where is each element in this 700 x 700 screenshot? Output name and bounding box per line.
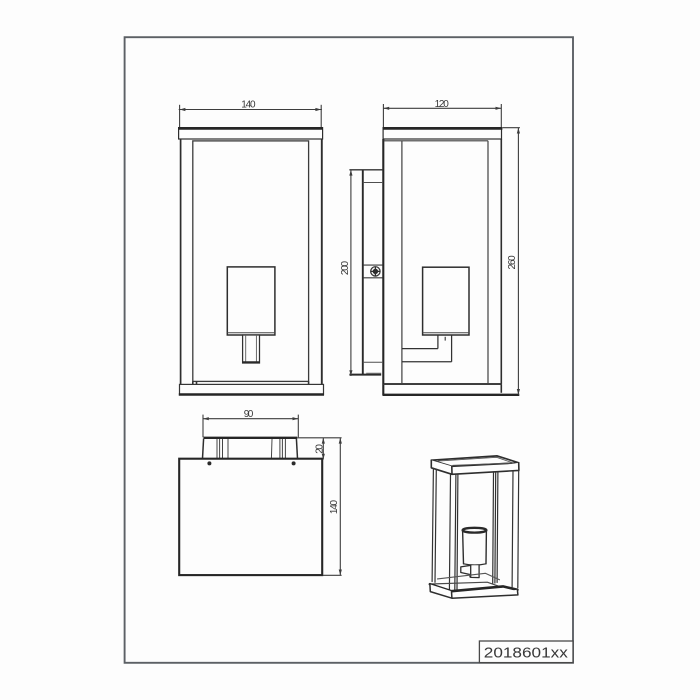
svg-text:2018601xx: 2018601xx <box>484 645 568 662</box>
svg-text:140: 140 <box>329 499 340 514</box>
svg-text:260: 260 <box>507 255 518 270</box>
svg-text:200: 200 <box>340 260 351 275</box>
